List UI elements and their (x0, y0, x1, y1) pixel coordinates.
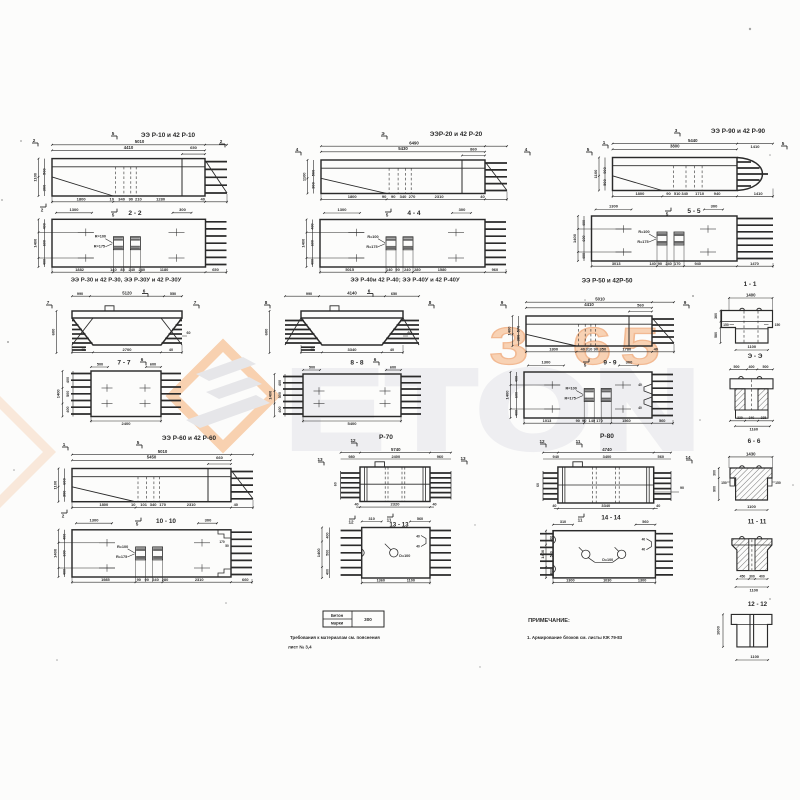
svg-text:1400: 1400 (53, 548, 58, 558)
svg-text:4740: 4740 (602, 447, 612, 452)
svg-text:3340: 3340 (348, 347, 358, 352)
svg-text:170: 170 (674, 261, 681, 266)
svg-text:310: 310 (560, 520, 566, 524)
svg-text:170: 170 (596, 418, 603, 423)
svg-text:900: 900 (602, 167, 607, 174)
svg-text:335: 335 (761, 416, 767, 420)
svg-text:1800: 1800 (77, 196, 87, 201)
svg-text:580: 580 (714, 332, 718, 338)
svg-text:1. Армирование блоков см.: 1. Армирование блоков см. листы КЖ 79-83 (527, 635, 623, 640)
svg-text:140: 140 (589, 418, 596, 423)
svg-text:1410: 1410 (754, 191, 764, 196)
svg-text:940: 940 (553, 454, 560, 459)
svg-text:5400: 5400 (348, 421, 358, 426)
svg-text:5: 5 (584, 363, 587, 368)
svg-text:570: 570 (516, 326, 521, 333)
svg-text:1300: 1300 (609, 204, 619, 209)
svg-text:1400: 1400 (746, 292, 756, 297)
svg-text:1300: 1300 (90, 518, 100, 523)
svg-text:5740: 5740 (391, 447, 401, 452)
svg-text:300: 300 (311, 182, 316, 189)
svg-text:140: 140 (110, 267, 117, 272)
svg-text:990: 990 (306, 292, 312, 296)
svg-text:60: 60 (536, 483, 540, 487)
svg-text:1030: 1030 (603, 578, 611, 582)
svg-text:400: 400 (326, 533, 330, 539)
svg-text:500: 500 (763, 365, 769, 369)
svg-text:600: 600 (264, 328, 269, 335)
svg-text:101: 101 (140, 502, 147, 507)
svg-text:40: 40 (432, 503, 436, 507)
svg-text:500: 500 (734, 365, 740, 369)
svg-text:300: 300 (62, 491, 67, 498)
svg-text:400: 400 (278, 406, 282, 412)
svg-text:6 - 6: 6 - 6 (748, 438, 761, 445)
svg-text:280: 280 (139, 267, 146, 272)
svg-text:R=100: R=100 (95, 235, 106, 239)
svg-text:ЭЭР-20 и 42 Р-20: ЭЭР-20 и 42 Р-20 (430, 131, 483, 138)
svg-text:1300: 1300 (566, 578, 574, 582)
svg-text:1300: 1300 (542, 360, 552, 365)
svg-text:12: 12 (348, 520, 354, 525)
svg-text:1280: 1280 (156, 196, 166, 201)
svg-text:560: 560 (658, 454, 665, 459)
svg-text:11: 11 (578, 518, 583, 523)
svg-text:60: 60 (334, 482, 338, 486)
svg-text:150: 150 (721, 481, 727, 485)
svg-text:40: 40 (654, 346, 659, 351)
svg-text:1410: 1410 (751, 144, 761, 149)
svg-text:650: 650 (212, 267, 219, 272)
svg-text:240: 240 (129, 267, 136, 272)
svg-text:2310: 2310 (195, 577, 204, 582)
svg-text:10 - 10: 10 - 10 (156, 518, 176, 525)
svg-text:300: 300 (711, 204, 718, 209)
svg-text:1180: 1180 (160, 267, 168, 272)
svg-text:1100: 1100 (750, 654, 759, 659)
svg-text:4: 4 (296, 147, 299, 152)
svg-text:270: 270 (409, 194, 416, 199)
svg-text:240: 240 (152, 577, 159, 582)
svg-text:90: 90 (582, 418, 586, 423)
svg-text:980: 980 (348, 454, 355, 459)
svg-text:140: 140 (386, 267, 393, 272)
svg-text:650: 650 (190, 145, 197, 150)
svg-text:40: 40 (234, 502, 239, 507)
svg-text:560: 560 (637, 303, 644, 308)
svg-text:400: 400 (326, 569, 330, 575)
svg-text:10: 10 (109, 196, 114, 201)
svg-text:40: 40 (310, 348, 314, 352)
svg-text:1780: 1780 (622, 346, 632, 351)
svg-text:11: 11 (387, 518, 392, 523)
svg-text:90: 90 (658, 261, 662, 266)
svg-text:ЭЭ Р-30 и 42 Р-30, ЭЭ Р-30У и: ЭЭ Р-30 и 42 Р-30, ЭЭ Р-30У и 42 Р-30У (71, 278, 182, 284)
svg-text:D=100: D=100 (602, 558, 613, 562)
svg-text:2: 2 (41, 208, 44, 213)
svg-text:5: 5 (386, 213, 389, 218)
svg-text:40: 40 (81, 348, 85, 352)
svg-text:ЭЭ Р-40и 42 Р-40; ЭЭ Р-40У и 4: ЭЭ Р-40и 42 Р-40; ЭЭ Р-40У и 42 Р-40У (350, 278, 460, 284)
svg-text:400: 400 (759, 574, 765, 578)
svg-text:40: 40 (416, 535, 420, 539)
svg-text:1580: 1580 (438, 267, 447, 272)
svg-text:90: 90 (594, 346, 599, 351)
svg-text:5010: 5010 (135, 139, 145, 144)
svg-text:5010: 5010 (595, 297, 605, 302)
svg-text:1400: 1400 (301, 238, 306, 248)
svg-text:3: 3 (489, 318, 528, 376)
svg-text:13: 13 (460, 456, 466, 461)
svg-text:560: 560 (417, 517, 423, 521)
svg-text:1300: 1300 (638, 578, 646, 582)
svg-text:150: 150 (775, 323, 781, 327)
svg-text:6: 6 (374, 357, 377, 362)
svg-text:310: 310 (586, 346, 593, 351)
svg-text:1800: 1800 (635, 191, 645, 196)
svg-text:990: 990 (77, 292, 83, 296)
svg-text:14: 14 (685, 455, 691, 460)
svg-text:1100: 1100 (747, 504, 756, 509)
svg-text:350: 350 (600, 346, 607, 351)
svg-text:3013: 3013 (612, 261, 621, 266)
svg-text:6: 6 (143, 288, 146, 293)
svg-text:2320: 2320 (391, 502, 401, 507)
svg-text:4: 4 (525, 147, 528, 152)
svg-text:D=100: D=100 (399, 554, 410, 558)
svg-text:650: 650 (391, 292, 397, 296)
svg-text:8: 8 (429, 300, 432, 305)
svg-text:300: 300 (459, 207, 466, 212)
svg-text:170: 170 (219, 540, 225, 544)
svg-text:2: 2 (220, 139, 223, 144)
svg-text:1882: 1882 (75, 267, 84, 272)
svg-text:5440: 5440 (688, 138, 698, 143)
svg-text:1470: 1470 (750, 261, 759, 266)
svg-text:280: 280 (162, 577, 169, 582)
svg-text:5010: 5010 (158, 449, 168, 454)
svg-text:12: 12 (350, 438, 356, 443)
svg-text:12: 12 (539, 439, 545, 444)
svg-text:ЭЭ Р-90 и 42 Р-90: ЭЭ Р-90 и 42 Р-90 (711, 128, 766, 135)
svg-text:13: 13 (317, 457, 323, 462)
svg-text:600: 600 (62, 478, 67, 485)
svg-text:1400: 1400 (316, 548, 321, 558)
svg-text:960: 960 (437, 454, 444, 459)
svg-text:5015: 5015 (345, 267, 354, 272)
svg-text:1100: 1100 (407, 578, 415, 582)
svg-text:5430: 5430 (398, 146, 408, 151)
svg-text:ПРИМЕЧАНИЕ:: ПРИМЕЧАНИЕ: (528, 618, 570, 624)
svg-text:280: 280 (414, 267, 421, 272)
svg-text:4140: 4140 (347, 291, 357, 296)
svg-text:марки: марки (331, 621, 344, 626)
svg-text:170: 170 (159, 502, 166, 507)
svg-text:40: 40 (200, 196, 205, 201)
svg-text:8 - 8: 8 - 8 (350, 360, 364, 367)
svg-text:3400: 3400 (603, 454, 612, 459)
svg-text:14 - 14: 14 - 14 (601, 515, 621, 522)
svg-text:1400: 1400 (268, 390, 273, 400)
svg-text:90: 90 (666, 191, 671, 196)
svg-text:1160: 1160 (749, 426, 758, 431)
svg-text:7: 7 (194, 300, 197, 305)
svg-text:40: 40 (354, 503, 358, 507)
svg-text:5: 5 (112, 131, 115, 136)
svg-text:Э - Э: Э - Э (748, 353, 763, 360)
svg-text:3: 3 (675, 128, 678, 133)
svg-text:2400: 2400 (391, 454, 400, 459)
svg-text:660: 660 (216, 455, 223, 460)
svg-text:400: 400 (66, 406, 70, 412)
svg-text:ЭЭ Р-50 и 42Р-50: ЭЭ Р-50 и 42Р-50 (582, 278, 633, 285)
svg-text:500: 500 (311, 170, 316, 177)
svg-text:1100: 1100 (749, 587, 758, 592)
svg-text:Требования к материалам см: Требования к материалам см. пояснения (290, 635, 380, 640)
svg-text:R=100: R=100 (117, 545, 128, 549)
svg-text:90: 90 (129, 196, 134, 201)
svg-text:ЭЭ Р-10 и 42 Р-10: ЭЭ Р-10 и 42 Р-10 (141, 132, 196, 139)
svg-text:1100: 1100 (53, 480, 58, 489)
svg-text:500: 500 (66, 391, 70, 397)
svg-text:150: 150 (723, 323, 729, 327)
svg-text:240: 240 (665, 261, 672, 266)
svg-text:4 - 4: 4 - 4 (407, 210, 421, 217)
svg-text:1400: 1400 (540, 549, 545, 559)
svg-text:500: 500 (326, 550, 330, 556)
svg-text:600: 600 (51, 328, 56, 335)
svg-text:R=175: R=175 (366, 245, 377, 249)
svg-text:50: 50 (225, 544, 229, 548)
svg-text:360: 360 (714, 313, 718, 319)
svg-text:40: 40 (416, 545, 420, 549)
svg-text:300: 300 (42, 185, 47, 192)
svg-text:90: 90 (382, 194, 387, 199)
svg-text:960: 960 (492, 267, 499, 272)
svg-text:1800: 1800 (99, 502, 109, 507)
svg-text:1400: 1400 (507, 326, 512, 336)
svg-text:5 - 5: 5 - 5 (687, 208, 701, 215)
svg-text:11: 11 (576, 439, 581, 444)
svg-text:40: 40 (480, 194, 485, 199)
svg-text:5: 5 (136, 522, 139, 527)
svg-text:900: 900 (713, 486, 717, 492)
svg-text:1300: 1300 (70, 207, 80, 212)
svg-text:1100: 1100 (33, 172, 38, 181)
svg-text:40: 40 (390, 348, 394, 352)
svg-text:2310: 2310 (187, 502, 197, 507)
svg-text:90: 90 (145, 577, 149, 582)
svg-text:940: 940 (714, 191, 721, 196)
svg-text:300: 300 (205, 518, 212, 523)
svg-text:210: 210 (135, 196, 142, 201)
svg-text:2 - 2: 2 - 2 (128, 210, 142, 217)
svg-text:60: 60 (408, 331, 412, 335)
svg-text:1985: 1985 (101, 577, 110, 582)
svg-text:1710: 1710 (695, 191, 705, 196)
svg-text:600: 600 (150, 362, 156, 366)
svg-text:40: 40 (638, 406, 642, 410)
svg-text:560: 560 (659, 418, 666, 423)
svg-text:1300: 1300 (338, 207, 348, 212)
svg-text:1: 1 (63, 442, 66, 447)
svg-text:1000: 1000 (716, 625, 721, 635)
svg-text:8: 8 (265, 300, 268, 305)
svg-text:2310: 2310 (435, 194, 445, 199)
svg-text:500: 500 (602, 179, 607, 186)
svg-text:6: 6 (141, 357, 144, 362)
svg-text:3800: 3800 (670, 144, 680, 149)
svg-text:R=100: R=100 (367, 235, 378, 239)
svg-text:40: 40 (642, 538, 646, 542)
svg-text:9 - 9: 9 - 9 (603, 360, 617, 367)
svg-text:1100: 1100 (302, 172, 307, 181)
svg-text:ЭЭ Р-60 и 42 Р-60: ЭЭ Р-60 и 42 Р-60 (162, 435, 217, 442)
svg-text:400: 400 (66, 377, 70, 383)
svg-text:7: 7 (47, 300, 50, 305)
svg-text:1 - 1: 1 - 1 (744, 281, 757, 288)
svg-text:510: 510 (674, 191, 681, 196)
svg-text:90: 90 (137, 577, 141, 582)
svg-text:560: 560 (642, 520, 648, 524)
svg-text:330: 330 (737, 416, 743, 420)
svg-text:500: 500 (42, 168, 47, 175)
svg-text:300: 300 (626, 360, 633, 365)
svg-text:1800: 1800 (348, 194, 358, 199)
svg-text:10: 10 (131, 502, 136, 507)
svg-text:400: 400 (278, 380, 282, 386)
svg-text:300: 300 (749, 574, 755, 578)
svg-text:12 - 12: 12 - 12 (748, 601, 768, 608)
svg-text:1100: 1100 (747, 344, 756, 349)
svg-text:3340: 3340 (601, 503, 611, 508)
svg-text:1400: 1400 (505, 390, 510, 400)
svg-text:600: 600 (390, 365, 396, 369)
svg-text:340: 340 (400, 194, 407, 199)
svg-text:150: 150 (775, 481, 781, 485)
svg-text:9: 9 (684, 300, 687, 305)
svg-text:60: 60 (187, 331, 191, 335)
svg-text:R=175: R=175 (116, 555, 127, 559)
svg-text:500: 500 (550, 551, 554, 557)
svg-text:40: 40 (169, 348, 173, 352)
svg-text:лист № 3,4: лист № 3,4 (288, 645, 312, 650)
svg-text:380: 380 (516, 335, 521, 342)
svg-text:140: 140 (649, 261, 656, 266)
svg-text:6: 6 (368, 288, 371, 293)
svg-text:4410: 4410 (124, 145, 134, 150)
svg-text:R=175: R=175 (637, 240, 648, 244)
svg-text:40: 40 (638, 383, 642, 387)
svg-text:5450: 5450 (147, 455, 157, 460)
svg-text:1: 1 (603, 140, 606, 145)
svg-text:340: 340 (681, 191, 688, 196)
svg-text:1400: 1400 (56, 389, 61, 399)
svg-text:R=100: R=100 (638, 230, 649, 234)
svg-text:4410: 4410 (584, 302, 594, 307)
svg-text:1430: 1430 (746, 451, 756, 456)
svg-text:90: 90 (680, 486, 684, 490)
svg-text:500: 500 (97, 362, 103, 366)
svg-text:300: 300 (713, 470, 717, 476)
svg-text:340: 340 (749, 416, 755, 420)
svg-text:Р-70: Р-70 (379, 434, 393, 441)
svg-text:5: 5 (112, 213, 115, 218)
svg-text:2700: 2700 (123, 347, 133, 352)
svg-text:300: 300 (179, 207, 186, 212)
svg-text:340: 340 (150, 502, 157, 507)
svg-text:11 - 11: 11 - 11 (748, 519, 767, 526)
svg-text:2: 2 (62, 514, 65, 519)
svg-text:1013: 1013 (543, 418, 552, 423)
svg-text:Р-80: Р-80 (600, 433, 614, 440)
svg-text:6490: 6490 (409, 141, 419, 146)
svg-text:1800: 1800 (549, 346, 559, 351)
svg-text:90: 90 (395, 267, 399, 272)
svg-text:5: 5 (587, 147, 590, 152)
svg-text:2: 2 (33, 138, 36, 143)
svg-text:310: 310 (369, 517, 375, 521)
svg-text:40: 40 (656, 504, 660, 508)
svg-text:450: 450 (740, 574, 746, 578)
svg-text:660: 660 (242, 577, 249, 582)
svg-text:340: 340 (118, 196, 125, 201)
svg-text:400: 400 (749, 365, 755, 369)
svg-text:500: 500 (278, 392, 282, 398)
svg-text:400: 400 (550, 536, 554, 542)
svg-text:1100: 1100 (593, 169, 598, 178)
svg-text:550: 550 (170, 292, 176, 296)
svg-text:7 - 7: 7 - 7 (117, 360, 131, 367)
svg-text:1560: 1560 (622, 418, 631, 423)
svg-text:2400: 2400 (122, 421, 132, 426)
svg-text:940: 940 (694, 261, 701, 266)
svg-text:400: 400 (550, 569, 554, 575)
svg-text:1400: 1400 (572, 233, 577, 243)
svg-text:5120: 5120 (122, 291, 132, 296)
svg-text:R=175: R=175 (94, 245, 105, 249)
svg-text:240: 240 (404, 267, 411, 272)
svg-text:90: 90 (391, 194, 396, 199)
svg-text:R=175: R=175 (565, 397, 576, 401)
svg-text:40: 40 (642, 548, 646, 552)
svg-text:1360: 1360 (377, 578, 385, 582)
svg-text:5: 5 (782, 141, 785, 146)
svg-text:40: 40 (552, 504, 556, 508)
svg-text:1400: 1400 (33, 238, 38, 248)
svg-text:9: 9 (501, 300, 504, 305)
svg-text:90: 90 (576, 418, 580, 423)
svg-text:Бетон: Бетон (331, 613, 344, 618)
svg-text:5: 5 (137, 440, 140, 445)
svg-text:500: 500 (309, 365, 315, 369)
svg-text:300: 300 (364, 617, 372, 622)
svg-text:860: 860 (470, 147, 477, 152)
svg-text:R=100: R=100 (566, 387, 577, 391)
